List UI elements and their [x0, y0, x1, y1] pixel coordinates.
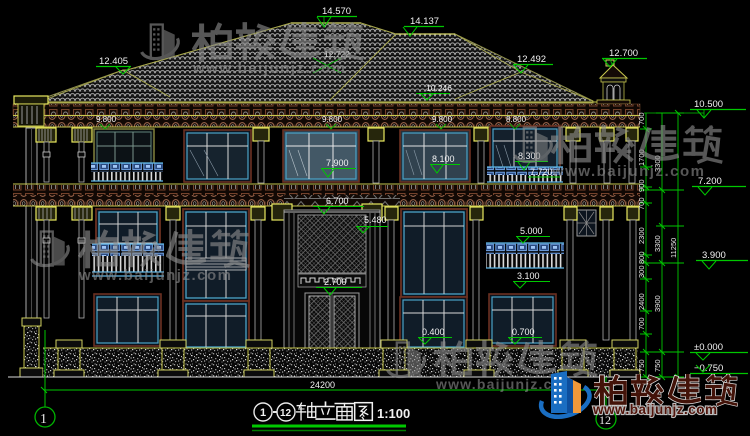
svg-text:300: 300	[637, 265, 646, 278]
svg-text:700: 700	[637, 197, 646, 210]
svg-text:1:100: 1:100	[377, 406, 410, 421]
svg-text:10.246: 10.246	[426, 83, 452, 93]
svg-text:750: 750	[653, 359, 662, 372]
svg-text:3.100: 3.100	[517, 271, 540, 281]
svg-text:7.900: 7.900	[326, 158, 349, 168]
svg-text:800: 800	[637, 251, 646, 264]
svg-text:700: 700	[637, 112, 646, 125]
svg-text:www.baijunjz.com: www.baijunjz.com	[551, 163, 705, 180]
svg-text:12: 12	[280, 408, 292, 419]
svg-text:10.500: 10.500	[694, 99, 723, 110]
svg-text:750: 750	[637, 359, 646, 372]
svg-text:8.800: 8.800	[506, 115, 527, 124]
svg-text:12.405: 12.405	[99, 56, 128, 67]
svg-text:5.000: 5.000	[520, 226, 543, 236]
svg-text:9.800: 9.800	[96, 115, 117, 124]
svg-text:12.700: 12.700	[609, 48, 638, 59]
svg-text:24200: 24200	[310, 380, 335, 390]
svg-text:3900: 3900	[653, 295, 662, 312]
svg-text:2.700: 2.700	[324, 277, 347, 287]
svg-text:8.100: 8.100	[432, 154, 455, 164]
svg-text:3.900: 3.900	[702, 250, 726, 261]
svg-text:7.720: 7.720	[530, 167, 553, 177]
svg-text:0.700: 0.700	[512, 327, 535, 337]
svg-text:2400: 2400	[637, 293, 646, 310]
svg-text:www.baijunjz.com: www.baijunjz.com	[592, 402, 718, 417]
svg-text:11250: 11250	[669, 238, 678, 258]
svg-text:±0.000: ±0.000	[694, 342, 723, 353]
svg-text:14.570: 14.570	[322, 6, 351, 17]
svg-text:0.400: 0.400	[422, 327, 445, 337]
svg-text:900: 900	[637, 179, 646, 192]
svg-text:12.492: 12.492	[517, 54, 546, 65]
svg-text:700: 700	[637, 317, 646, 330]
svg-text:6.700: 6.700	[326, 196, 349, 206]
svg-text:1: 1	[40, 412, 47, 427]
svg-text:2300: 2300	[637, 227, 646, 244]
svg-text:−0.750: −0.750	[694, 363, 723, 374]
svg-text:9.800: 9.800	[322, 115, 343, 124]
svg-text:5.480: 5.480	[364, 215, 387, 225]
svg-text:www.baijunjz.com: www.baijunjz.com	[78, 267, 232, 284]
svg-text:14.137: 14.137	[410, 16, 439, 27]
svg-text:9.800: 9.800	[432, 115, 453, 124]
svg-text:1: 1	[260, 407, 266, 419]
svg-text:www.baijunjz.com: www.baijunjz.com	[192, 60, 346, 77]
svg-text:3300: 3300	[653, 235, 662, 252]
